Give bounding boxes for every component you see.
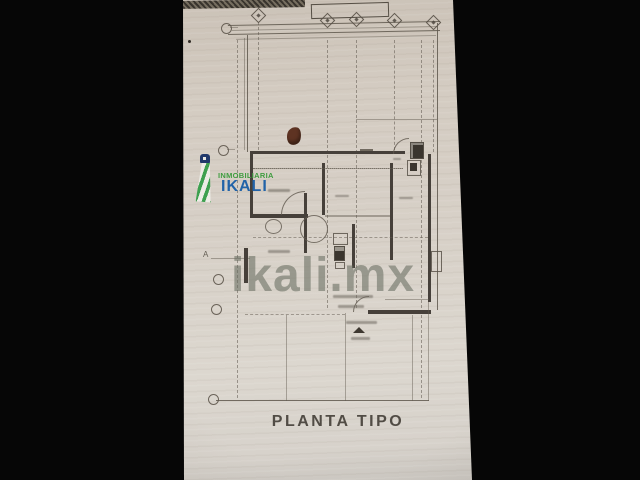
wall-step	[431, 251, 442, 272]
grid-circle-marker	[221, 23, 232, 34]
grid-row-label: A	[203, 250, 208, 259]
room-label-smudge	[335, 195, 349, 197]
note-smudge	[338, 305, 364, 308]
boundary-line	[247, 35, 248, 152]
dimension-line	[228, 30, 440, 35]
speck-mark	[188, 40, 191, 43]
boundary-line	[244, 38, 245, 150]
grid-circle-marker	[211, 304, 222, 315]
grid-tick	[230, 27, 238, 28]
partition-line	[325, 215, 390, 217]
setback-line	[356, 119, 437, 120]
wall-bottom-right	[368, 310, 431, 314]
fixture-box	[410, 142, 424, 159]
grid-line-vertical	[394, 40, 395, 150]
grid-line-vertical	[433, 40, 434, 152]
grid-tick	[227, 149, 235, 150]
note-smudge	[351, 337, 370, 340]
fixture-box	[410, 163, 417, 171]
bath-fixture	[333, 233, 348, 245]
patio-line	[412, 315, 413, 401]
wall-interior	[322, 163, 325, 215]
stair-circle	[300, 215, 328, 243]
porch-dashed-line	[245, 314, 345, 315]
note-smudge	[393, 158, 401, 160]
paper-texture	[183, 0, 475, 480]
plan-caption: PLANTA TIPO	[243, 413, 433, 431]
watermark-text: ikali.mx	[231, 248, 431, 303]
grid-line-vertical	[421, 40, 422, 398]
logo-title: IKALI	[221, 178, 268, 196]
plot-bottom-line	[216, 400, 429, 401]
grid-circle-marker	[213, 274, 224, 285]
sink-fixture	[265, 219, 282, 234]
grid-line-vertical	[237, 40, 238, 398]
lighthouse-icon	[196, 162, 214, 203]
patio-line	[345, 313, 346, 401]
patio-line	[428, 302, 429, 401]
note-smudge	[346, 321, 377, 324]
lighthouse-lantern	[200, 154, 210, 163]
ikali-logo: INMOBILIARIA IKALI	[193, 154, 277, 216]
grid-line-vertical	[258, 22, 259, 150]
stairs-up-arrow	[353, 327, 365, 333]
scanned-page: A	[183, 0, 475, 480]
room-label-smudge	[399, 197, 413, 199]
patio-line	[286, 315, 287, 401]
wall-interior	[390, 163, 393, 260]
